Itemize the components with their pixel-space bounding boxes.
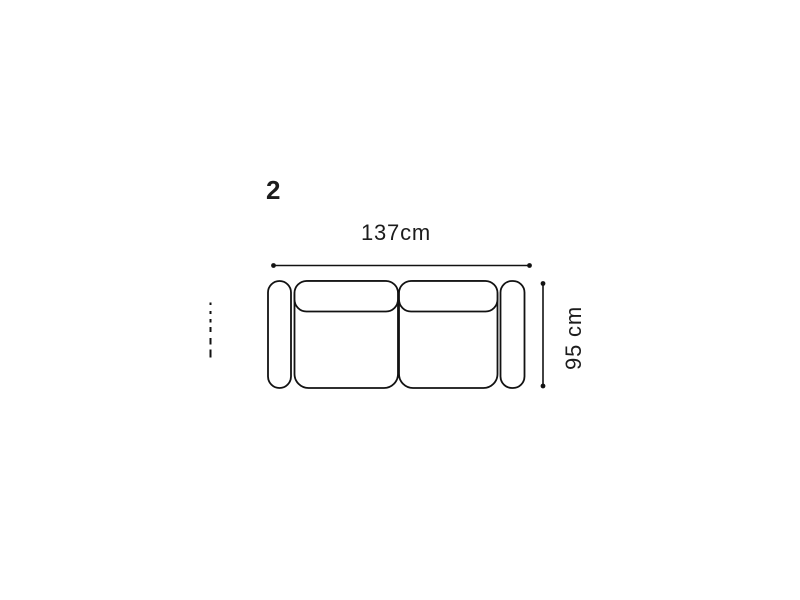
page: 2 137cm 95 cm	[0, 0, 800, 600]
right-armrest	[501, 281, 525, 388]
height-dimension-endpoint-top	[541, 281, 546, 286]
width-dimension-endpoint-left	[271, 263, 276, 268]
width-dimension-line	[271, 263, 532, 268]
sofa-top-view-drawing	[0, 0, 800, 600]
width-dimension-endpoint-right	[527, 263, 532, 268]
left-armrest	[268, 281, 291, 388]
height-dimension-line	[541, 281, 546, 388]
back-cushion-right	[399, 281, 498, 312]
sofa-outline	[268, 281, 525, 388]
height-dimension-endpoint-bottom	[541, 384, 546, 389]
back-cushion-left	[295, 281, 399, 312]
